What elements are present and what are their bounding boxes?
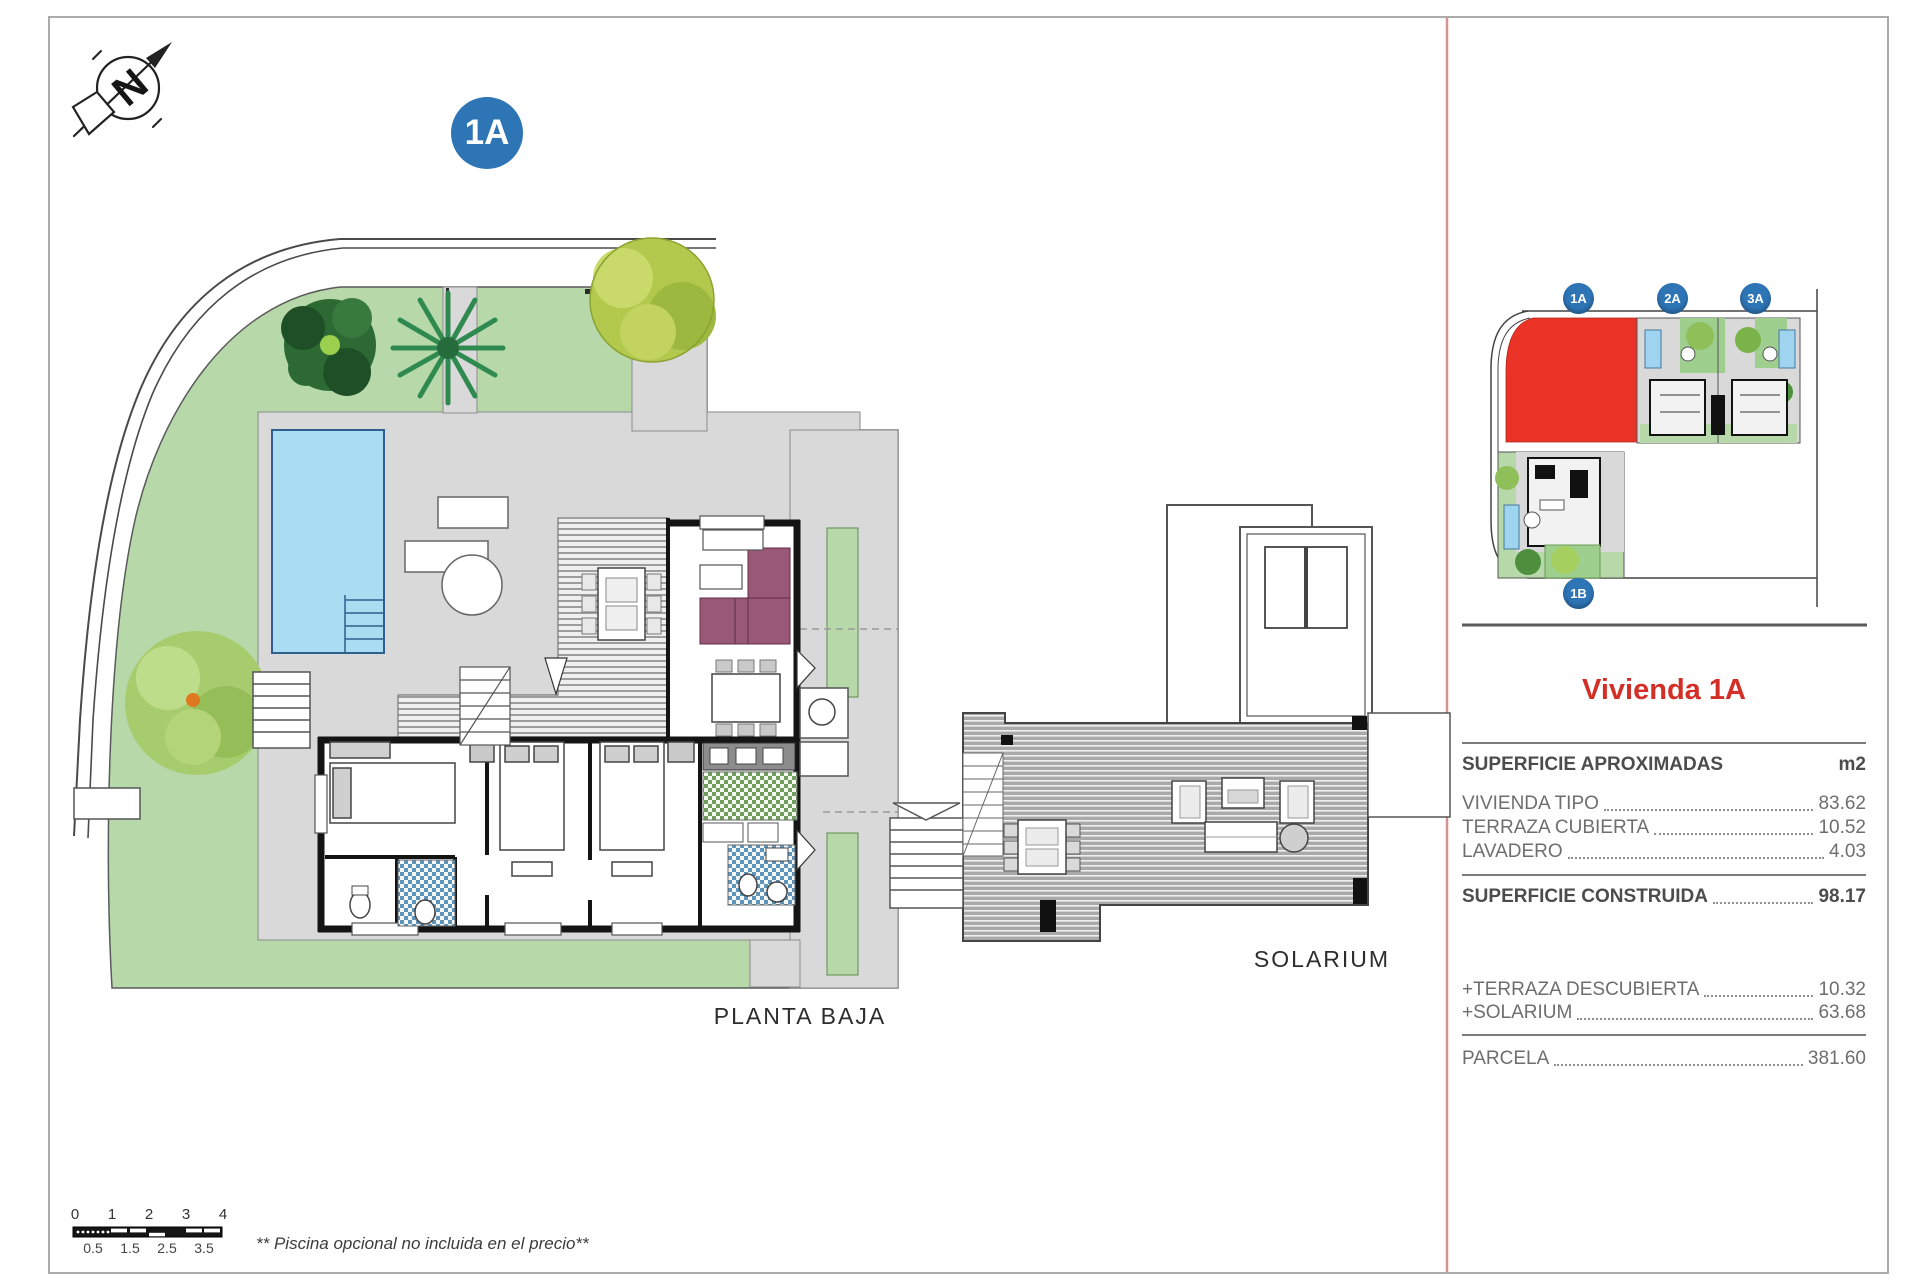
table-row: TERRAZA CUBIERTA 10.52 (1462, 817, 1866, 839)
green-strip-right-bottom (827, 833, 858, 975)
tree-dark (281, 298, 376, 396)
row-value: 98.17 (1818, 886, 1866, 908)
row-label: LAVADERO (1462, 841, 1563, 863)
pool-footnote: ** Piscina opcional no incluida en el pr… (256, 1234, 589, 1254)
green-strip-right-top (827, 528, 858, 697)
panel-title: Vivienda 1A (1462, 674, 1866, 707)
table-row: LAVADERO 4.03 (1462, 841, 1866, 863)
key-badge-2a: 2A (1657, 283, 1688, 314)
row-label: +SOLARIUM (1462, 1002, 1572, 1024)
plan-sheet: N (0, 0, 1920, 1280)
north-arrow-icon: N (73, 42, 172, 136)
tree-light (125, 631, 269, 775)
kitchen-floor (703, 772, 797, 820)
planta-baja-label: PLANTA BAJA (700, 1003, 900, 1030)
sideboard (703, 530, 763, 550)
table-line-top (1462, 742, 1866, 744)
table-row-total: SUPERFICIE CONSTRUIDA 98.17 (1462, 886, 1866, 908)
scale-tick: 2 (145, 1206, 153, 1223)
scale-tick: 4 (219, 1206, 227, 1223)
north-letter: N (103, 59, 156, 115)
plot-1a-highlight (1506, 318, 1637, 442)
row-value: 10.52 (1818, 817, 1866, 839)
table-header-unit: m2 (1839, 754, 1866, 776)
villa-1b (1495, 452, 1624, 578)
solarium-stair (890, 803, 963, 908)
table-header-label: SUPERFICIE APROXIMADAS (1462, 754, 1723, 776)
row-value: 381.60 (1808, 1048, 1866, 1070)
row-label: VIVIENDA TIPO (1462, 793, 1599, 815)
table-row: VIVIENDA TIPO 83.62 (1462, 793, 1866, 815)
row-label: SUPERFICIE CONSTRUIDA (1462, 886, 1708, 908)
scale-tick: 0.5 (83, 1240, 102, 1256)
scale-tick: 0 (71, 1206, 79, 1223)
table-row-parcela: PARCELA 381.60 (1462, 1048, 1866, 1070)
scale-tick: 2.5 (157, 1240, 176, 1256)
villas-2a-3a (1637, 318, 1800, 443)
exterior-stair (253, 672, 310, 748)
entry-stair (460, 667, 510, 745)
porch (800, 688, 848, 776)
table-line-mid (1462, 874, 1866, 876)
scale-tick: 1.5 (120, 1240, 139, 1256)
pool (272, 430, 384, 653)
row-value: 10.32 (1818, 979, 1866, 1001)
row-value: 4.03 (1829, 841, 1866, 863)
scale-tick: 1 (108, 1206, 116, 1223)
key-badge-3a: 3A (1740, 283, 1771, 314)
scale-tick: 3 (182, 1206, 190, 1223)
row-value: 63.68 (1818, 1002, 1866, 1024)
key-badge-1b: 1B (1563, 578, 1594, 609)
table-line-bottom (1462, 1034, 1866, 1036)
key-badge-1a: 1A (1563, 283, 1594, 314)
table-row: +SOLARIUM 63.68 (1462, 1002, 1866, 1024)
table-header: SUPERFICIE APROXIMADAS m2 (1462, 754, 1866, 776)
row-label: +TERRAZA DESCUBIERTA (1462, 979, 1699, 1001)
unit-badge-1a: 1A (451, 97, 523, 169)
deck-edge-stair (963, 753, 1003, 856)
dining-set-interior (712, 660, 780, 736)
coffee-table (700, 565, 742, 589)
dining-set-terrace (582, 568, 661, 640)
row-label: TERRAZA CUBIERTA (1462, 817, 1649, 839)
road-marker (74, 788, 140, 819)
key-plan (1462, 289, 1867, 625)
row-value: 83.62 (1818, 793, 1866, 815)
table-row: +TERRAZA DESCUBIERTA 10.32 (1462, 979, 1866, 1001)
tree-yellow (590, 238, 716, 362)
solarium-plan (890, 505, 1450, 941)
scale-bar (73, 1227, 222, 1237)
plan-drawing: N (0, 0, 1920, 1280)
solarium-label: SOLARIUM (1222, 946, 1422, 973)
open-terrace (1368, 713, 1450, 817)
scale-tick: 3.5 (194, 1240, 213, 1256)
row-label: PARCELA (1462, 1048, 1549, 1070)
